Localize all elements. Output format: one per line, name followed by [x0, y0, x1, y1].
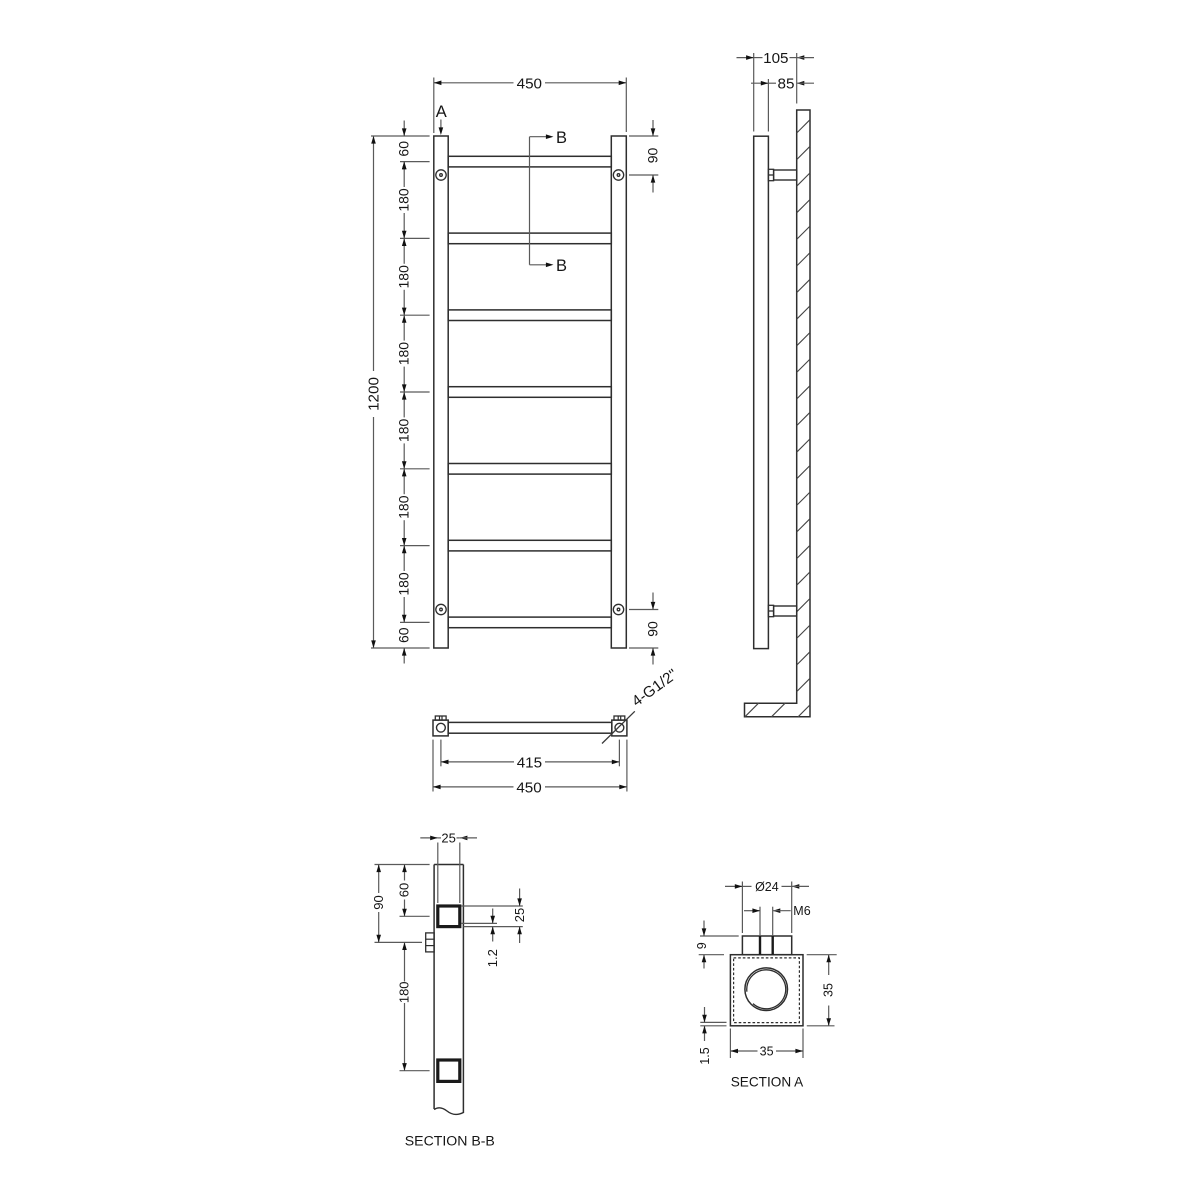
- svg-text:90: 90: [371, 895, 386, 909]
- svg-text:60: 60: [396, 627, 412, 643]
- svg-text:105: 105: [763, 50, 788, 67]
- svg-text:1.2: 1.2: [485, 949, 500, 967]
- svg-text:SECTION B-B: SECTION B-B: [405, 1133, 495, 1149]
- svg-text:180: 180: [396, 572, 412, 596]
- svg-text:180: 180: [396, 265, 412, 289]
- svg-text:35: 35: [760, 1045, 774, 1059]
- svg-text:90: 90: [645, 148, 661, 164]
- svg-text:B: B: [556, 257, 567, 275]
- svg-text:M6: M6: [793, 904, 810, 918]
- svg-text:SECTION A: SECTION A: [731, 1074, 804, 1089]
- svg-text:450: 450: [516, 779, 541, 796]
- svg-text:180: 180: [396, 419, 412, 443]
- svg-text:180: 180: [396, 495, 412, 519]
- svg-text:1.5: 1.5: [698, 1047, 712, 1064]
- svg-text:180: 180: [396, 342, 412, 366]
- svg-text:25: 25: [512, 908, 527, 922]
- svg-text:60: 60: [397, 883, 412, 897]
- svg-text:450: 450: [517, 75, 542, 92]
- svg-text:60: 60: [396, 141, 412, 157]
- svg-text:B: B: [556, 129, 567, 147]
- svg-text:415: 415: [517, 754, 542, 771]
- svg-text:180: 180: [397, 981, 412, 1003]
- svg-text:9: 9: [695, 942, 709, 949]
- svg-text:Ø24: Ø24: [755, 880, 779, 894]
- svg-text:A: A: [436, 103, 447, 121]
- svg-text:85: 85: [778, 76, 795, 93]
- svg-text:180: 180: [396, 188, 412, 212]
- svg-text:25: 25: [441, 831, 455, 846]
- svg-text:35: 35: [822, 983, 836, 997]
- svg-text:90: 90: [645, 621, 661, 637]
- svg-text:1200: 1200: [365, 377, 382, 411]
